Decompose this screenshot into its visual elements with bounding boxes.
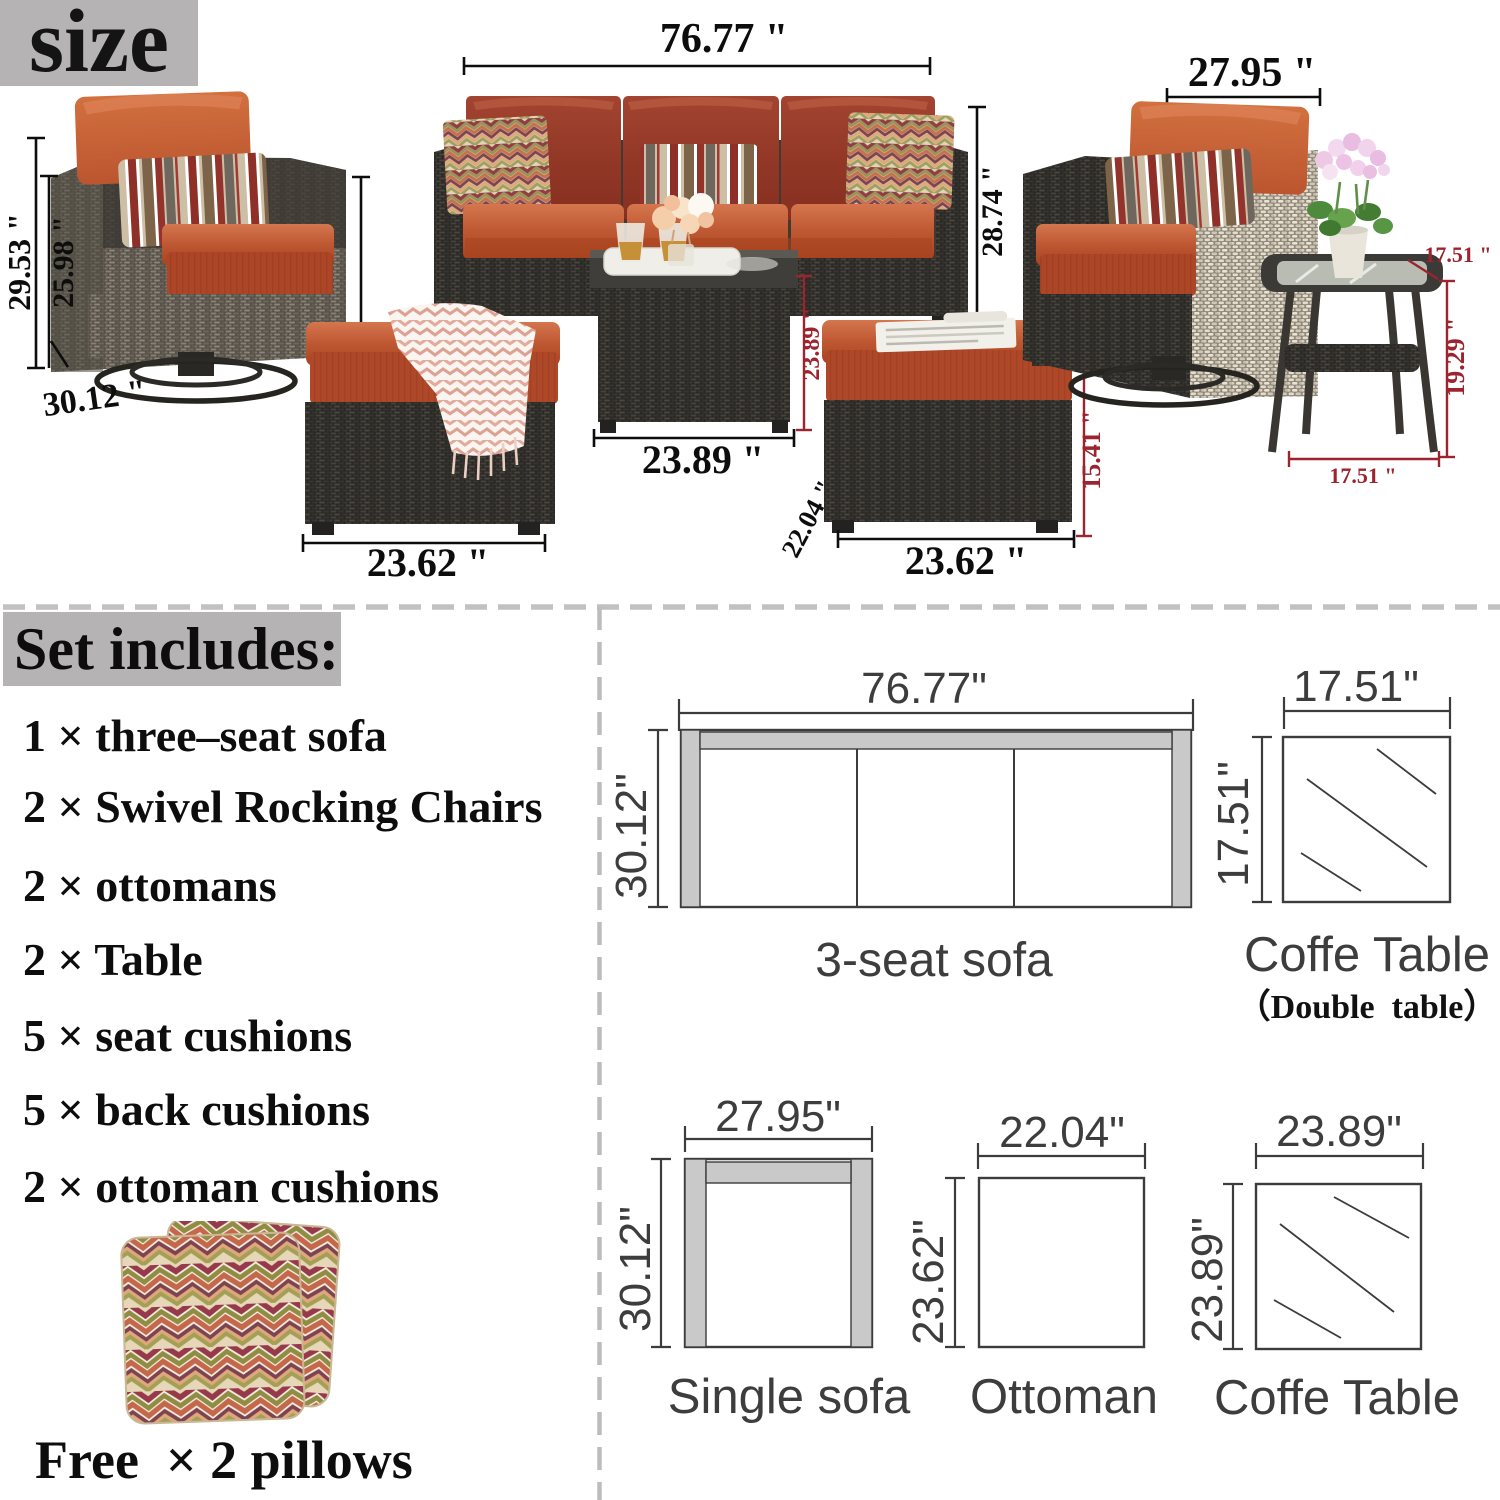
svg-text:27.95 ": 27.95 ": [1188, 50, 1316, 96]
svg-text:17.51": 17.51": [1209, 761, 1258, 887]
svg-text:76.77": 76.77": [861, 664, 987, 713]
svg-text:27.95": 27.95": [715, 1092, 841, 1141]
svg-text:76.77 ": 76.77 ": [660, 16, 788, 62]
svg-text:22.04": 22.04": [999, 1108, 1125, 1157]
svg-text:23.89": 23.89": [1183, 1217, 1232, 1343]
svg-text:23.89": 23.89": [1276, 1107, 1402, 1156]
svg-text:23.62": 23.62": [904, 1219, 953, 1345]
svg-text:17.51": 17.51": [1293, 662, 1419, 711]
svg-text:size: size: [29, 0, 169, 91]
svg-text:Single sofa: Single sofa: [668, 1370, 911, 1424]
svg-text:17.51 ": 17.51 ": [1329, 463, 1396, 488]
svg-text:23.89 ": 23.89 ": [799, 307, 825, 380]
svg-text:30.12": 30.12": [607, 773, 656, 899]
svg-text:23.62 ": 23.62 ": [367, 540, 489, 585]
svg-text:28.74 ": 28.74 ": [976, 165, 1009, 257]
svg-text:23.89 ": 23.89 ": [642, 437, 764, 482]
svg-text:Coffe Table: Coffe Table: [1244, 928, 1490, 982]
svg-text:Ottoman: Ottoman: [970, 1370, 1158, 1424]
svg-text:23.62 ": 23.62 ": [905, 538, 1027, 583]
svg-text:19.29 ": 19.29 ": [1441, 317, 1470, 396]
svg-text:（Double table）: （Double table）: [1237, 987, 1498, 1026]
svg-text:Coffe Table: Coffe Table: [1214, 1371, 1460, 1425]
svg-text:15.41 ": 15.41 ": [1077, 410, 1106, 489]
svg-text:17.51 ": 17.51 ": [1424, 242, 1491, 267]
svg-text:30.12 ": 30.12 ": [41, 373, 149, 424]
svg-text:29.53 ": 29.53 ": [1, 213, 37, 311]
svg-text:3-seat sofa: 3-seat sofa: [815, 934, 1053, 987]
svg-text:30.12": 30.12": [611, 1206, 660, 1332]
svg-text:25.98 ": 25.98 ": [47, 216, 80, 308]
